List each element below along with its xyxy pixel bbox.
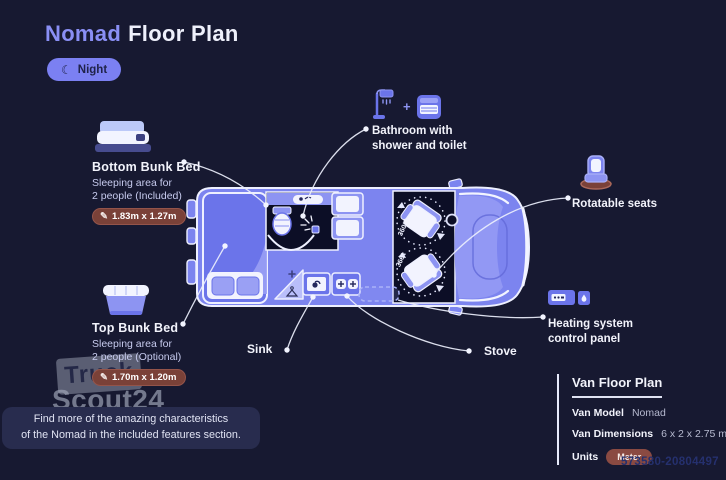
top-bunk-dimensions: 1.70m x 1.20m <box>112 372 176 383</box>
rotatable-seat-icon <box>578 154 614 190</box>
info-label: Units <box>572 451 598 463</box>
van-info-panel: Van Floor Plan Van Model Nomad Van Dimen… <box>557 374 726 465</box>
info-value: Nomad <box>632 407 666 419</box>
bathroom-label-2: shower and toilet <box>372 139 482 154</box>
callout-rotatable-seats: Rotatable seats <box>572 154 682 212</box>
shower-icon <box>372 86 398 120</box>
callout-top-bunk: Top Bunk Bed Sleeping area for 2 people … <box>92 284 262 386</box>
top-bunk-desc-2: 2 people (Optional) <box>92 351 262 364</box>
bottom-bunk-desc-1: Sleeping area for <box>92 177 252 190</box>
bottom-bunk-dimensions-badge: ✎ 1.83m x 1.27m <box>92 208 186 225</box>
top-bunk-bed-icon <box>100 284 152 316</box>
note-line-2: of the Nomad in the included features se… <box>21 428 241 444</box>
heating-panel-icon <box>548 288 590 308</box>
info-row: Van Model Nomad <box>572 407 726 419</box>
steering-wheel <box>447 215 458 226</box>
stove-label: Stove <box>484 344 517 360</box>
callout-bathroom: + Bathroom with shower and toilet <box>372 86 482 154</box>
callout-heating: Heating system control panel <box>548 288 658 347</box>
top-bunk-desc-1: Sleeping area for <box>92 338 262 351</box>
stove-unit <box>332 273 360 295</box>
info-row: Van Dimensions 6 x 2 x 2.75 m <box>572 428 726 440</box>
note-line-1: Find more of the amazing characteristics <box>34 412 228 428</box>
bathroom-label-1: Bathroom with <box>372 124 482 139</box>
note-panel: Find more of the amazing characteristics… <box>2 407 260 449</box>
heating-zone-dashed <box>359 287 399 301</box>
info-label: Van Dimensions <box>572 428 653 440</box>
listing-ref-number: 573580-20804497 <box>621 456 719 468</box>
callout-bottom-bunk: Bottom Bunk Bed Sleeping area for 2 peop… <box>92 119 252 225</box>
floor-plan-page: 360° 360° <box>0 0 726 480</box>
sink-unit <box>303 273 330 295</box>
pencil-icon: ✎ <box>100 211 108 222</box>
toilet-icon <box>416 94 442 120</box>
bottom-bunk-dimensions: 1.83m x 1.27m <box>112 211 176 222</box>
top-bunk-dimensions-badge: ✎ 1.70m x 1.20m <box>92 369 186 386</box>
bottom-bunk-bed-icon <box>94 119 152 155</box>
heating-label-2: control panel <box>548 332 658 347</box>
pencil-icon: ✎ <box>100 372 108 383</box>
rotatable-seats-label: Rotatable seats <box>572 197 682 212</box>
night-mode-toggle[interactable]: ☾ Night <box>47 58 121 81</box>
heating-label-1: Heating system <box>548 317 658 332</box>
bottom-bunk-title: Bottom Bunk Bed <box>92 160 252 174</box>
van-name: Nomad <box>45 21 121 46</box>
toilet <box>273 207 291 235</box>
info-panel-title: Van Floor Plan <box>572 375 662 398</box>
bathroom-room <box>266 192 338 250</box>
bottom-bunk-desc-2: 2 people (Included) <box>92 190 252 203</box>
sink-label: Sink <box>247 342 272 358</box>
info-value: 6 x 2 x 2.75 m <box>661 428 726 440</box>
plus-icon: + <box>403 99 411 120</box>
night-mode-label: Night <box>78 64 107 76</box>
info-label: Van Model <box>572 407 624 419</box>
top-bunk-title: Top Bunk Bed <box>92 321 262 335</box>
moon-icon: ☾ <box>61 64 72 76</box>
page-title: NomadFloor Plan <box>45 21 239 47</box>
